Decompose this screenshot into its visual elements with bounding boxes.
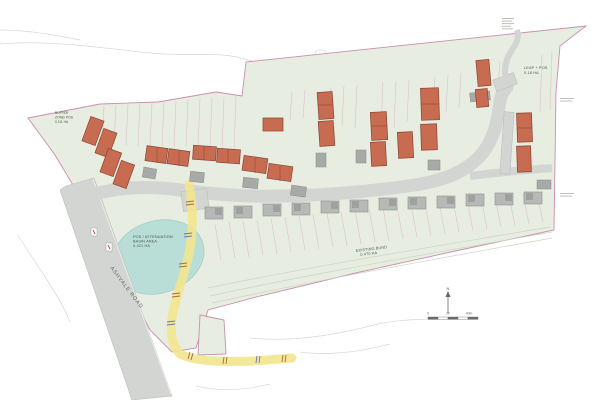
- north-letter: N: [447, 286, 450, 291]
- existing-house: [350, 200, 368, 212]
- annotation-text-block: [560, 193, 574, 197]
- buffer-zone-line1: BUFFER: [55, 111, 69, 115]
- proposed-house: [475, 89, 489, 108]
- existing-house: [524, 192, 542, 204]
- existing-house: [379, 198, 397, 210]
- proposed-house: [397, 132, 413, 159]
- proposed-house: [193, 145, 217, 161]
- leap-pos-line2: 0.18 HA: [524, 71, 539, 75]
- scale-20: 20: [446, 312, 450, 316]
- buffer-zone-line3: 0.111 HA: [55, 120, 69, 124]
- buffer-zone-line2: ZONE/ POS: [55, 116, 74, 120]
- existing-house: [466, 194, 484, 206]
- existing-house: [205, 207, 223, 219]
- green-pocket: [198, 315, 226, 355]
- basin-line1: POS / ATTENUATION: [133, 235, 173, 239]
- scale-40: 40m: [466, 312, 473, 316]
- existing-house: [321, 201, 339, 213]
- proposed-house: [370, 142, 386, 167]
- proposed-house: [318, 120, 335, 146]
- existing-house: [292, 203, 310, 215]
- existing-house: [263, 204, 281, 216]
- scale-bar: 0 20 40m: [427, 312, 478, 320]
- proposed-house: [517, 146, 532, 172]
- proposed-house: [421, 124, 438, 151]
- site-plan-drawing: BUFFER ZONE/ POS 0.111 HA LEAP + POS 0.1…: [0, 0, 600, 400]
- proposed-house: [167, 149, 190, 167]
- existing-house: [234, 206, 252, 218]
- leap-pos-line1: LEAP + POS: [524, 66, 548, 70]
- existing-house: [437, 196, 455, 208]
- proposed-house: [145, 146, 168, 164]
- annotation-text-block: [560, 98, 574, 102]
- existing-house: [495, 193, 513, 205]
- proposed-house: [217, 148, 241, 164]
- existing-house: [408, 197, 426, 209]
- basin-line3: 0.321 HA: [133, 244, 150, 248]
- annotation-text-block: [502, 18, 514, 29]
- scale-0: 0: [427, 312, 429, 316]
- basin-line2: BASIN AREA: [133, 240, 157, 244]
- north-arrow: N: [446, 286, 451, 313]
- proposed-house: [263, 118, 283, 131]
- proposed-house: [517, 113, 533, 143]
- proposed-house: [476, 59, 491, 86]
- proposed-house: [317, 91, 334, 119]
